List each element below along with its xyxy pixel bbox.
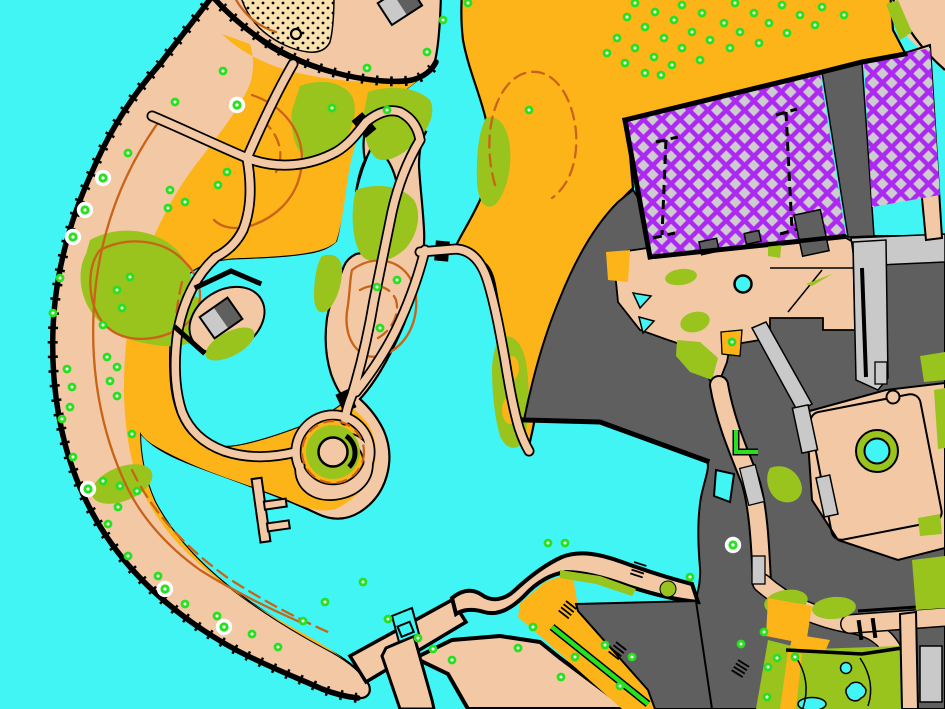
tree-icon bbox=[106, 356, 109, 359]
tree-icon bbox=[52, 312, 55, 315]
tree-icon bbox=[302, 620, 305, 623]
tree-icon bbox=[821, 6, 824, 9]
courtyard-lawn-1 bbox=[606, 250, 630, 282]
veg-plaza-ne bbox=[920, 352, 945, 382]
tree-icon bbox=[426, 51, 429, 54]
mound-platform bbox=[319, 438, 348, 467]
tree-icon bbox=[102, 324, 105, 327]
tree-icon bbox=[121, 307, 124, 310]
tree-icon bbox=[766, 696, 769, 699]
tree-icon bbox=[251, 633, 254, 636]
courtyard-fountain bbox=[735, 276, 752, 293]
prominent-tree-icon bbox=[71, 235, 74, 238]
tree-icon bbox=[843, 14, 846, 17]
tree-icon bbox=[681, 47, 684, 50]
tree-icon bbox=[653, 56, 656, 59]
tree-icon bbox=[71, 386, 74, 389]
tree-icon bbox=[417, 637, 420, 640]
tree-icon bbox=[799, 14, 802, 17]
tree-icon bbox=[376, 286, 379, 289]
tree-icon bbox=[387, 618, 390, 621]
tree-icon bbox=[174, 101, 177, 104]
tree-icon bbox=[753, 12, 756, 15]
lawn-street-north bbox=[766, 598, 812, 644]
plaza-fountain-pool bbox=[865, 439, 890, 464]
tree-icon bbox=[157, 575, 160, 578]
tree-icon bbox=[634, 47, 637, 50]
tree-icon bbox=[226, 171, 229, 174]
tree-icon bbox=[689, 576, 692, 579]
tree-icon bbox=[564, 542, 567, 545]
tree-icon bbox=[116, 395, 119, 398]
tree-icon bbox=[119, 485, 122, 488]
tree-icon bbox=[604, 644, 607, 647]
prominent-tree-icon bbox=[731, 543, 734, 546]
tree-icon bbox=[66, 368, 69, 371]
tree-icon bbox=[547, 542, 550, 545]
tree-icon bbox=[366, 67, 369, 70]
tree-icon bbox=[814, 24, 817, 27]
tree-icon bbox=[217, 184, 220, 187]
tree-icon bbox=[117, 506, 120, 509]
map-canvas[interactable] bbox=[0, 0, 945, 709]
well-ring-symbol bbox=[291, 29, 301, 39]
e-pier-arm-1 bbox=[264, 499, 287, 510]
tree-icon bbox=[432, 648, 435, 651]
tree-icon bbox=[386, 109, 389, 112]
garden-pond-small bbox=[841, 663, 852, 674]
garden-pool-oval bbox=[798, 698, 826, 709]
tree-icon bbox=[61, 418, 64, 421]
orienteering-map bbox=[0, 0, 945, 709]
tree-icon bbox=[699, 59, 702, 62]
prominent-tree-icon bbox=[86, 487, 89, 490]
canopy-garden-east bbox=[920, 646, 942, 702]
tree-icon bbox=[776, 657, 779, 660]
tree-icon bbox=[794, 656, 797, 659]
prominent-tree-icon bbox=[83, 208, 86, 211]
tree-icon bbox=[277, 646, 280, 649]
tree-icon bbox=[763, 631, 766, 634]
tree-icon bbox=[631, 656, 634, 659]
tree-icon bbox=[127, 152, 130, 155]
tree-icon bbox=[574, 656, 577, 659]
tree-icon bbox=[663, 37, 666, 40]
tree-icon bbox=[660, 74, 663, 77]
tree-icon bbox=[184, 603, 187, 606]
tree-icon bbox=[781, 4, 784, 7]
tree-icon bbox=[379, 327, 382, 330]
tree-icon bbox=[517, 647, 520, 650]
tree-icon bbox=[740, 643, 743, 646]
prominent-tree-icon bbox=[222, 625, 225, 628]
tree-icon bbox=[767, 666, 770, 669]
tree-icon bbox=[362, 581, 365, 584]
street-east bbox=[850, 617, 945, 624]
tree-icon bbox=[644, 26, 647, 29]
street-garden-east bbox=[900, 612, 918, 709]
tree-icon bbox=[109, 380, 112, 383]
prominent-tree-icon bbox=[235, 103, 238, 106]
tree-icon bbox=[324, 601, 327, 604]
tree-icon bbox=[734, 2, 737, 5]
tree-icon bbox=[619, 685, 622, 688]
tree-icon bbox=[72, 456, 75, 459]
tree-icon bbox=[102, 480, 105, 483]
tree-icon bbox=[606, 52, 609, 55]
tree-icon bbox=[739, 31, 742, 34]
oob-shed-2 bbox=[744, 230, 761, 244]
tree-icon bbox=[758, 42, 761, 45]
e-pier-arm-2 bbox=[267, 520, 290, 531]
tree-icon bbox=[624, 62, 627, 65]
tree-icon bbox=[701, 12, 704, 15]
tree-icon bbox=[467, 2, 470, 5]
tree-icon bbox=[768, 22, 771, 25]
tree-icon bbox=[222, 70, 225, 73]
water-notch bbox=[714, 470, 734, 502]
tree-icon bbox=[616, 37, 619, 40]
prominent-tree-icon bbox=[163, 587, 166, 590]
veg-garden-ne bbox=[912, 556, 945, 610]
tree-icon bbox=[184, 201, 187, 204]
tree-icon bbox=[169, 189, 172, 192]
tree-icon bbox=[786, 32, 789, 35]
tree-icon bbox=[69, 406, 72, 409]
tree-icon bbox=[107, 523, 110, 526]
tree-icon bbox=[560, 676, 563, 679]
tree-icon bbox=[671, 64, 674, 67]
veg-walkway-halfmoon bbox=[660, 581, 676, 597]
tree-icon bbox=[691, 31, 694, 34]
tree-icon bbox=[127, 555, 130, 558]
tree-icon bbox=[167, 207, 170, 210]
tree-icon bbox=[116, 289, 119, 292]
tree-icon bbox=[626, 16, 629, 19]
tree-icon bbox=[129, 276, 132, 279]
tree-icon bbox=[116, 366, 119, 369]
canopy-plaza-north bbox=[875, 362, 887, 384]
tree-icon bbox=[216, 615, 219, 618]
tree-icon bbox=[729, 47, 732, 50]
oob-hatch-east bbox=[864, 48, 940, 207]
tree-icon bbox=[532, 626, 535, 629]
tree-icon bbox=[634, 2, 637, 5]
tree-icon bbox=[731, 341, 734, 344]
plaza-niche bbox=[887, 391, 900, 404]
tree-icon bbox=[528, 109, 531, 112]
tree-icon bbox=[709, 39, 712, 42]
tree-icon bbox=[451, 659, 454, 662]
tree-icon bbox=[442, 19, 445, 22]
tree-icon bbox=[673, 19, 676, 22]
tree-icon bbox=[644, 72, 647, 75]
tree-icon bbox=[396, 279, 399, 282]
tree-icon bbox=[131, 433, 134, 436]
tree-icon bbox=[136, 490, 139, 493]
tree-icon bbox=[59, 277, 62, 280]
canopy-street-2 bbox=[752, 556, 765, 584]
tree-icon bbox=[331, 107, 334, 110]
prominent-tree-icon bbox=[101, 176, 104, 179]
tree-icon bbox=[681, 4, 684, 7]
tree-icon bbox=[723, 22, 726, 25]
tree-icon bbox=[654, 11, 657, 14]
